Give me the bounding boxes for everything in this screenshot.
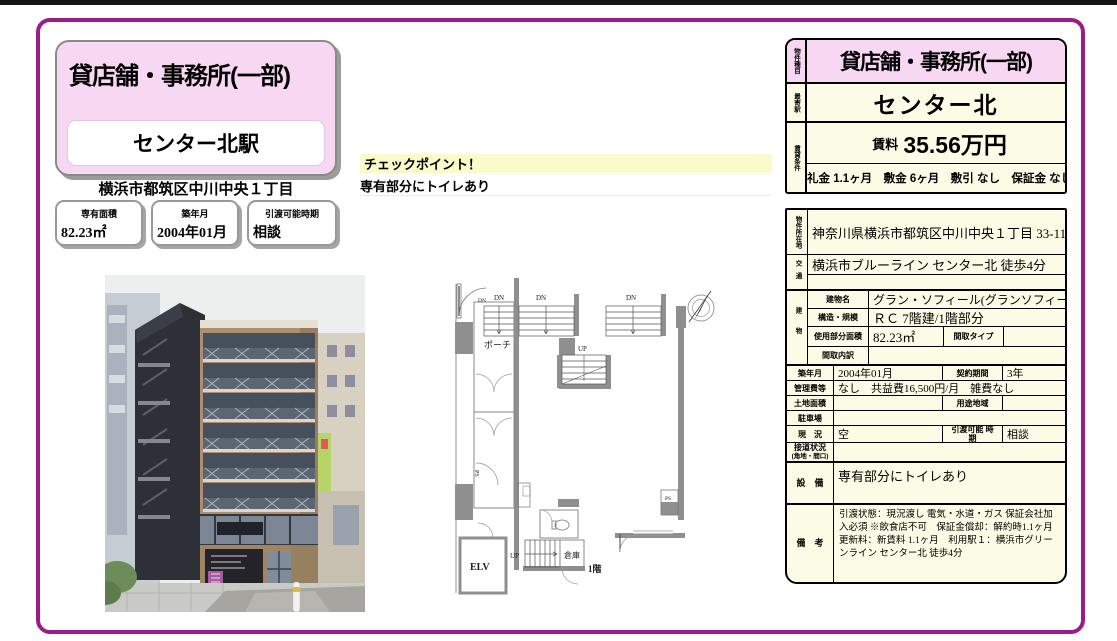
dn-label-2: DN — [494, 294, 504, 302]
structure-value: ＲＣ 7階建/1階部分 — [868, 309, 1067, 326]
summary-built-label: 築年月 — [153, 207, 237, 220]
contract-label: 契約期間 — [942, 366, 1002, 380]
layout-type-value — [1003, 327, 1067, 346]
layout-detail-value — [868, 347, 1067, 364]
building-label: 建物 — [787, 291, 807, 364]
handover-label: 引渡可能 時期 — [942, 426, 1002, 442]
location-value: 神奈川県横浜市都筑区中川中央１丁目 33-11 — [807, 210, 1065, 254]
parking-value — [833, 411, 1065, 425]
land-label: 土地面積 — [787, 396, 833, 410]
contract-value: 3年 — [1002, 366, 1065, 380]
price-row-terms: 賃貸条件 賃料 35.56万円 礼金 1.1ヶ月 敷金 6ヶ月 敷引 なし 保証… — [787, 121, 1065, 192]
building-photo-svg — [105, 275, 365, 612]
floor1-label: 1階 — [588, 563, 602, 574]
row-fees: 管理費等 なし 共益費16,500円/月 雑費なし — [787, 380, 1065, 395]
status-value: 空 — [833, 426, 942, 442]
deposit-terms: 礼金 1.1ヶ月 敷金 6ヶ月 敷引 なし 保証金 なし — [807, 163, 1067, 192]
building-name-label: 建物名 — [808, 291, 868, 308]
used-area-label: 使用部分面積 — [808, 327, 868, 346]
row-parking: 駐車場 — [787, 410, 1065, 425]
road-label2: (角地・間口) — [792, 452, 829, 461]
price-table: 物件種目 貸店舗・事務所(一部) 最寄駅 センター北 賃貸条件 賃料 35.56… — [785, 38, 1067, 194]
checkpoint-title: チェックポイント！ — [360, 154, 481, 173]
land-value — [833, 396, 942, 410]
station-name: センター北駅 — [133, 128, 259, 158]
row-land: 土地面積 用途地域 — [787, 395, 1065, 410]
section-building: 建物 建物名 グラン・ソフィール(グランソフィール) 構造・規模 ＲＣ 7階建/… — [787, 289, 1065, 364]
price-row-type: 物件種目 貸店舗・事務所(一部) — [787, 40, 1065, 82]
fees-label: 管理費等 — [787, 381, 833, 395]
summary-handover-value: 相談 — [249, 222, 335, 242]
station-name-box: センター北駅 — [67, 120, 325, 166]
access-label: 交通 — [787, 255, 807, 289]
floorplan-svg: DN DN DN DN UP ポーチ PS PS ELV UP 倉庫 1階 — [428, 278, 768, 623]
zoning-value — [1002, 396, 1065, 410]
terms-vlabel: 賃貸条件 — [787, 123, 807, 192]
row-road: 接道状況 (角地・間口) — [787, 442, 1065, 461]
property-type-title: 貸店舗・事務所(一部) — [57, 42, 335, 91]
summary-area-value: 82.23㎡ — [57, 222, 141, 242]
structure-label: 構造・規模 — [808, 309, 868, 326]
access-line1: 横浜市ブルーライン センター北 徒歩4分 — [808, 255, 1065, 274]
address-line: 横浜市都筑区中川中央１丁目 — [55, 178, 337, 199]
summary-box-handover: 引渡可能時期 相談 — [247, 200, 337, 246]
rent-label: 賃料 — [872, 134, 898, 153]
rent-value: 35.56万円 — [903, 126, 1007, 160]
nearest-station-value: センター北 — [807, 84, 1065, 121]
checkpoint-strip: チェックポイント！ — [360, 154, 772, 173]
ps-label-right: PS — [665, 496, 671, 502]
equipment-value: 専有部分にトイレあり — [833, 463, 1065, 503]
used-area-value: 82.23㎡ — [868, 327, 943, 346]
summary-built-value: 2004年01月 — [153, 222, 237, 242]
layout-type-label: 間取タイプ — [943, 327, 1003, 346]
summary-handover-label: 引渡可能時期 — [249, 207, 335, 220]
price-row-station: 最寄駅 センター北 — [787, 82, 1065, 121]
road-value — [833, 443, 1065, 461]
summary-box-area: 専有面積 82.23㎡ — [55, 200, 143, 246]
checkpoint-note: 専有部分にトイレあり — [360, 176, 772, 196]
row-location: 物件所在地 神奈川県横浜市都筑区中川中央１丁目 33-11 — [787, 210, 1065, 254]
property-type-value: 貸店舗・事務所(一部) — [807, 40, 1065, 82]
building-photo — [105, 275, 365, 612]
zoning-label: 用途地域 — [942, 396, 1002, 410]
remarks-value: 引渡状態：現況渡し 電気・水道・ガス 保証会社加入必須 ※飲食店不可 保証金償却… — [833, 505, 1065, 582]
fees-value: なし 共益費16,500円/月 雑費なし — [833, 381, 1065, 395]
row-remarks: 備 考 引渡状態：現況渡し 電気・水道・ガス 保証会社加入必須 ※飲食店不可 保… — [787, 503, 1065, 582]
floorplan: DN DN DN DN UP ポーチ PS PS ELV UP 倉庫 1階 — [428, 278, 768, 623]
porch-label: ポーチ — [484, 340, 511, 350]
dn-label-3: DN — [536, 294, 546, 302]
ps-label-left: PS — [473, 470, 479, 477]
property-detail-table: 物件所在地 神奈川県横浜市都筑区中川中央１丁目 33-11 交通 横浜市ブルーラ… — [785, 208, 1067, 584]
access-line2 — [808, 275, 1065, 289]
summary-box-built: 築年月 2004年01月 — [151, 200, 239, 246]
row-built-year: 築年月 2004年01月 契約期間 3年 — [787, 364, 1065, 380]
row-status: 現 況 空 引渡可能 時期 相談 — [787, 425, 1065, 442]
storage-label: 倉庫 — [564, 550, 580, 560]
station-vlabel: 最寄駅 — [787, 84, 807, 121]
summary-area-label: 専有面積 — [57, 207, 141, 220]
row-access: 交通 横浜市ブルーライン センター北 徒歩4分 — [787, 254, 1065, 289]
status-label: 現 況 — [787, 426, 833, 442]
location-label: 物件所在地 — [787, 210, 807, 254]
header-card: 貸店舗・事務所(一部) センター北駅 — [55, 40, 337, 176]
remarks-label: 備 考 — [787, 505, 833, 582]
row-equipment: 設 備 専有部分にトイレあり — [787, 461, 1065, 503]
dn-label-4: DN — [626, 294, 636, 302]
built-year-value: 2004年01月 — [833, 366, 942, 380]
north-compass — [688, 291, 714, 322]
up-label-1: UP — [578, 345, 587, 353]
handover-value: 相談 — [1002, 426, 1065, 442]
up-label-2: UP — [510, 552, 519, 560]
dn-label-1: DN — [478, 298, 486, 304]
layout-detail-label: 間取内訳 — [808, 347, 868, 364]
property-type-vlabel: 物件種目 — [787, 40, 807, 82]
building-name-value: グラン・ソフィール(グランソフィール) — [868, 291, 1067, 308]
top-black-bar — [0, 0, 1117, 5]
parking-label: 駐車場 — [787, 411, 833, 425]
built-year-label: 築年月 — [787, 366, 833, 380]
elevator-label: ELV — [470, 562, 490, 573]
road-label: 接道状況 — [794, 443, 826, 452]
equipment-label: 設 備 — [787, 463, 833, 503]
